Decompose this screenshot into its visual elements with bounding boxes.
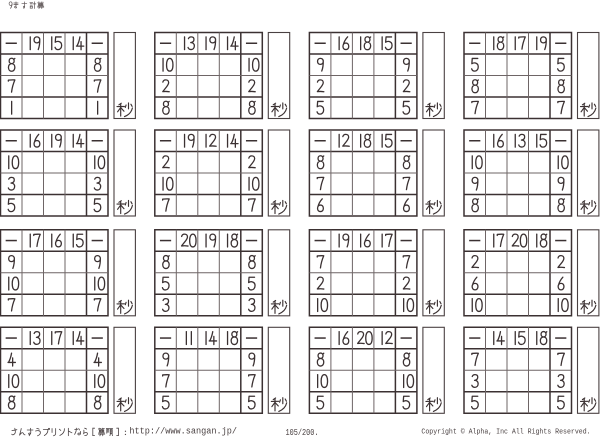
svg-text:Copyright © Alpha, Inc All Rig: Copyright © Alpha, Inc All Rights Reserv… — [421, 427, 590, 436]
svg-text:http://www.sangan.jp/: http://www.sangan.jp/ — [129, 427, 237, 437]
svg-text:105/200.: 105/200. — [286, 428, 319, 438]
